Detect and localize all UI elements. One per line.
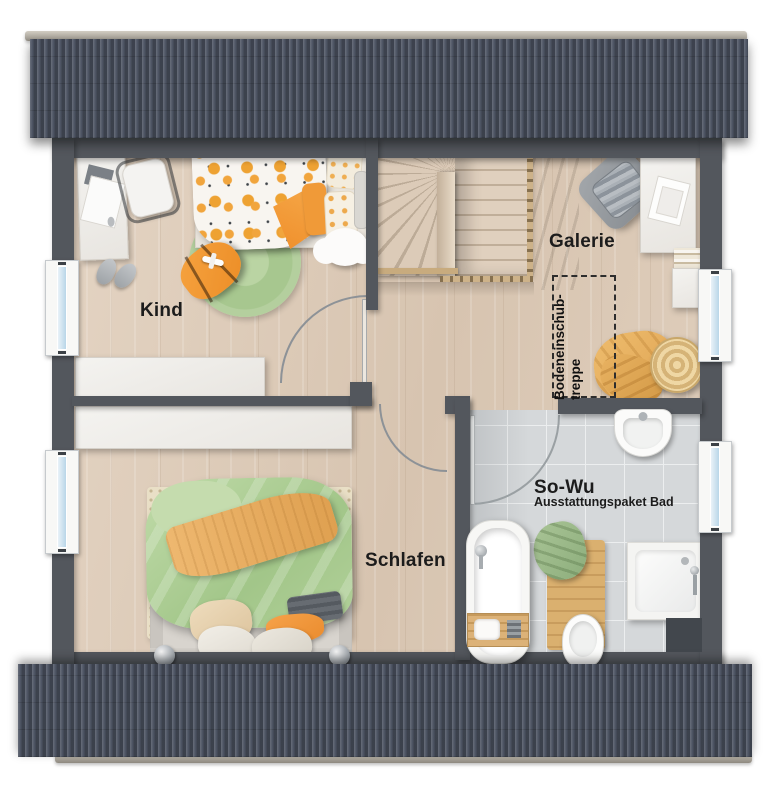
attic-label-line2: treppe [568, 270, 584, 400]
roof-slope-top [30, 39, 748, 138]
exterior-wall-left [52, 552, 74, 670]
room-label-galerie: Galerie [549, 231, 615, 253]
exterior-wall-right [700, 138, 722, 271]
door-leaf-kind [362, 299, 367, 383]
interior-wall-corner [350, 382, 372, 406]
room-label-schlafen: Schlafen [365, 550, 446, 572]
cloud-side-table [322, 228, 368, 266]
bathroom-duct-void [666, 618, 702, 652]
stair-floor-shadow [378, 282, 534, 296]
floor-plan: Kind Galerie Schlafen So-Wu Ausstattungs… [0, 0, 775, 800]
interior-wall-kind-schlafen [72, 396, 372, 406]
exterior-wall-left [52, 352, 74, 450]
kind-wardrobe [75, 357, 265, 398]
window-kind [45, 260, 79, 356]
room-sublabel-bad: Ausstattungspaket Bad [534, 495, 674, 509]
roof-slope-bottom [18, 664, 752, 757]
window-glass [710, 447, 720, 527]
stair-straight-flight [455, 156, 532, 276]
interior-wall-kind [366, 138, 378, 310]
window-glass [57, 266, 67, 350]
bathtub-caddy-tray [467, 613, 529, 647]
window-schlafen [45, 450, 79, 554]
stair-stringer-edge [378, 268, 458, 274]
window-glass [710, 275, 720, 356]
exterior-wall-right [700, 530, 722, 670]
exterior-wall-left [52, 138, 74, 262]
shower-faucet [688, 566, 704, 596]
galerie-desk [640, 156, 696, 253]
room-label-kind: Kind [140, 300, 183, 322]
laptop [647, 176, 691, 227]
bathtub [466, 520, 530, 664]
stair-railing-bottom [440, 276, 533, 282]
bedpost-finial [154, 645, 175, 666]
window-bad [698, 441, 732, 533]
exterior-wall-right [700, 359, 722, 443]
book-stack [674, 248, 700, 268]
schlafen-wardrobe [75, 406, 352, 449]
bedpost-finial [329, 645, 350, 666]
shower-drain [681, 557, 689, 565]
stair-spine-wall [437, 172, 455, 276]
wicker-basket [650, 337, 704, 393]
exterior-wall-top [52, 138, 722, 158]
door-leaf-bad [470, 415, 475, 505]
staircase [378, 156, 532, 276]
attic-hatch-label: Bodeneinschub- treppe [552, 270, 594, 400]
toilet [562, 614, 604, 668]
window-glass [57, 456, 67, 548]
window-galerie [698, 269, 732, 362]
kind-desk-chair [120, 156, 176, 219]
bathtub-faucet [475, 545, 487, 557]
stair-railing-right [527, 156, 533, 282]
attic-label-line1: Bodeneinschub- [552, 270, 568, 400]
